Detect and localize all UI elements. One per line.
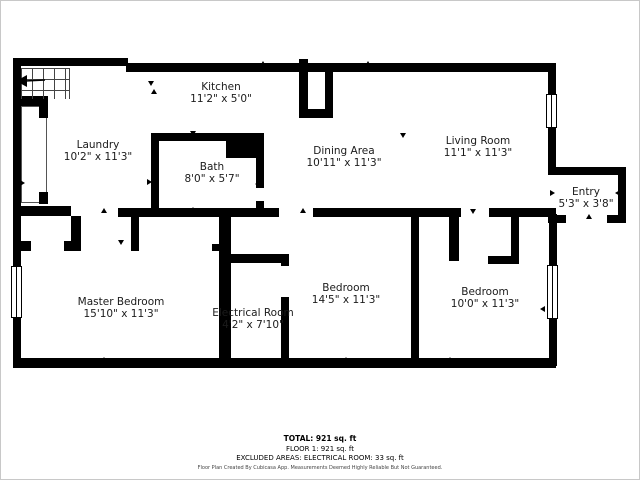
room-name: Bedroom bbox=[312, 282, 380, 294]
floorplan-image: Kitchen 11'2" x 5'0" Laundry 10'2" x 11'… bbox=[0, 0, 640, 480]
measurement-marker-icon bbox=[586, 214, 592, 219]
room-dims: 10'2" x 11'3" bbox=[64, 151, 132, 163]
measurement-marker-icon bbox=[260, 61, 266, 66]
room-label-bath: Bath 8'0" x 5'7" bbox=[184, 161, 239, 185]
wall bbox=[449, 216, 459, 261]
wall bbox=[489, 208, 556, 217]
room-dims: 15'10" x 11'3" bbox=[78, 308, 165, 320]
wall bbox=[39, 192, 48, 204]
measurement-marker-icon bbox=[255, 181, 260, 187]
measurement-marker-icon bbox=[540, 306, 545, 312]
room-name: Dining Area bbox=[306, 145, 381, 157]
wall bbox=[151, 133, 159, 217]
wall bbox=[256, 201, 264, 217]
room-dims: 10'11" x 11'3" bbox=[306, 157, 381, 169]
wall bbox=[313, 208, 461, 217]
measurement-marker-icon bbox=[447, 357, 453, 362]
footer-excluded-areas: EXCLUDED AREAS: ELECTRICAL ROOM: 33 sq. … bbox=[1, 454, 639, 462]
room-dims: 4'2" x 7'10" bbox=[212, 319, 294, 331]
measurement-marker-icon bbox=[400, 133, 406, 138]
room-name: Kitchen bbox=[190, 81, 252, 93]
wall bbox=[607, 215, 626, 223]
wall bbox=[226, 139, 264, 158]
room-name: Bath bbox=[184, 161, 239, 173]
room-dims: 10'0" x 11'3" bbox=[451, 298, 519, 310]
floorplan-canvas: Kitchen 11'2" x 5'0" Laundry 10'2" x 11'… bbox=[1, 1, 640, 480]
measurement-marker-icon bbox=[550, 190, 555, 196]
measurement-marker-icon bbox=[470, 209, 476, 214]
measurement-marker-icon bbox=[251, 358, 257, 363]
room-dims: 11'1" x 11'3" bbox=[444, 147, 512, 159]
room-name: Entry bbox=[558, 186, 613, 198]
room-dims: 14'5" x 11'3" bbox=[312, 294, 380, 306]
room-label-entry: Entry 5'3" x 3'8" bbox=[558, 186, 613, 210]
wall bbox=[13, 241, 31, 251]
measurement-marker-icon bbox=[101, 357, 107, 362]
wall bbox=[325, 72, 333, 118]
wall bbox=[411, 216, 419, 368]
room-dims: 11'2" x 5'0" bbox=[190, 93, 252, 105]
wall bbox=[548, 167, 626, 175]
wall bbox=[13, 58, 128, 66]
measurement-marker-icon bbox=[365, 61, 371, 66]
measurement-marker-icon bbox=[588, 169, 594, 174]
stairs-direction-arrow-icon bbox=[11, 69, 47, 91]
wall bbox=[13, 206, 71, 216]
room-name: Bedroom bbox=[451, 286, 519, 298]
window bbox=[546, 94, 557, 128]
room-name: Electrical Room bbox=[212, 307, 294, 319]
measurement-marker-icon bbox=[20, 180, 25, 186]
measurement-marker-icon bbox=[615, 190, 620, 196]
wall bbox=[219, 216, 231, 368]
measurement-marker-icon bbox=[86, 60, 92, 65]
footer-disclaimer: Floor Plan Created By Cubicasa App. Meas… bbox=[1, 465, 639, 471]
measurement-marker-icon bbox=[300, 208, 306, 213]
measurement-marker-icon bbox=[348, 209, 354, 214]
measurement-marker-icon bbox=[343, 357, 349, 362]
wall bbox=[488, 256, 519, 264]
room-label-bedroom-145: Bedroom 14'5" x 11'3" bbox=[312, 282, 380, 306]
wall bbox=[64, 241, 81, 251]
measurement-marker-icon bbox=[190, 207, 196, 212]
room-label-master-bedroom: Master Bedroom 15'10" x 11'3" bbox=[78, 296, 165, 320]
room-label-bedroom-100: Bedroom 10'0" x 11'3" bbox=[451, 286, 519, 310]
laundry-closet-outline bbox=[21, 106, 47, 203]
wall bbox=[212, 244, 219, 251]
room-label-dining-area: Dining Area 10'11" x 11'3" bbox=[306, 145, 381, 169]
room-label-electrical-room: Electrical Room 4'2" x 7'10" bbox=[212, 307, 294, 331]
footer-floor-area: FLOOR 1: 921 sq. ft bbox=[1, 445, 639, 453]
room-dims: 5'3" x 3'8" bbox=[558, 198, 613, 210]
measurement-marker-icon bbox=[468, 63, 474, 68]
wall bbox=[131, 216, 139, 251]
measurement-marker-icon bbox=[251, 254, 257, 259]
window bbox=[547, 265, 558, 319]
room-name: Laundry bbox=[64, 139, 132, 151]
room-label-living-room: Living Room 11'1" x 11'3" bbox=[444, 135, 512, 159]
wall bbox=[126, 63, 556, 72]
wall bbox=[548, 63, 556, 97]
wall bbox=[118, 208, 279, 217]
room-label-kitchen: Kitchen 11'2" x 5'0" bbox=[190, 81, 252, 105]
measurement-marker-icon bbox=[147, 179, 152, 185]
measurement-marker-icon bbox=[101, 208, 107, 213]
wall bbox=[549, 319, 557, 366]
room-dims: 8'0" x 5'7" bbox=[184, 173, 239, 185]
wall bbox=[39, 106, 48, 118]
room-name: Master Bedroom bbox=[78, 296, 165, 308]
footer-total-area: TOTAL: 921 sq. ft bbox=[1, 434, 639, 443]
room-name: Living Room bbox=[444, 135, 512, 147]
window bbox=[11, 266, 22, 318]
wall bbox=[281, 254, 289, 266]
measurement-marker-icon bbox=[118, 240, 124, 245]
measurement-marker-icon bbox=[151, 89, 157, 94]
measurement-marker-icon bbox=[190, 131, 196, 136]
room-label-laundry: Laundry 10'2" x 11'3" bbox=[64, 139, 132, 163]
measurement-marker-icon bbox=[148, 81, 154, 86]
